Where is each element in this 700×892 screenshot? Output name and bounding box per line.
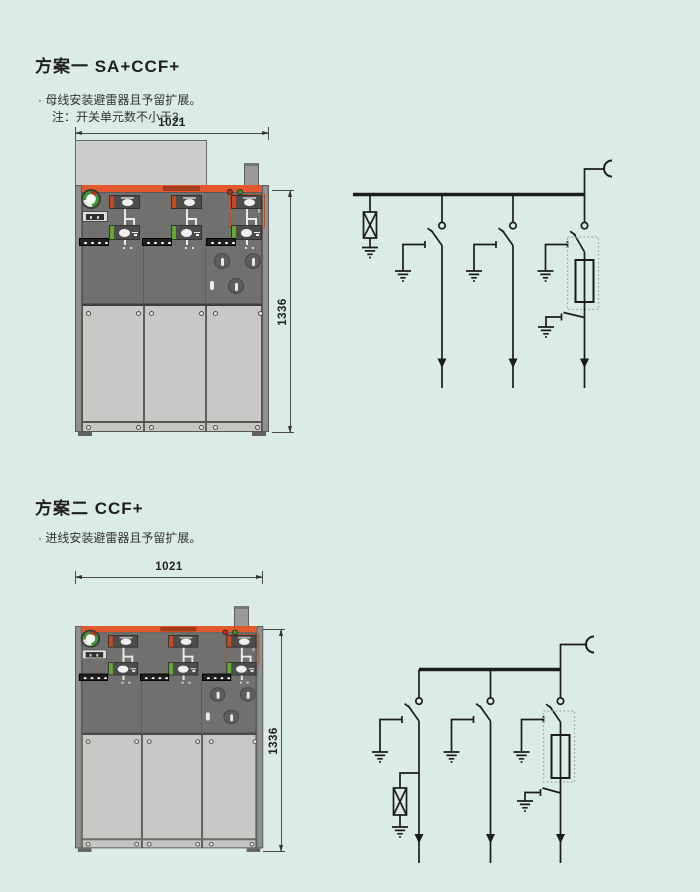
operating-knob — [122, 199, 133, 206]
panel-separator — [205, 243, 206, 304]
earth-mark — [132, 232, 138, 234]
dim-arrow-down — [279, 845, 283, 852]
nameplate-label — [163, 186, 200, 191]
fuse-combination-branch — [514, 671, 575, 863]
operating-port — [214, 253, 230, 269]
earth-mark — [190, 668, 196, 669]
screw — [147, 739, 152, 744]
screw — [149, 425, 154, 430]
bottom-strip — [82, 839, 257, 848]
bottom-strip — [82, 422, 262, 432]
operating-port — [228, 278, 244, 294]
dim-arrow-left — [75, 131, 82, 135]
earth-mark — [256, 234, 259, 236]
operating-port — [210, 687, 226, 701]
key-slot — [206, 712, 210, 720]
cabinet-front-view-scheme1 — [75, 185, 269, 436]
load-break-switch-module — [109, 195, 140, 209]
panel-separator — [143, 243, 144, 304]
screw — [86, 739, 91, 744]
door-separator — [143, 306, 145, 421]
scheme1-title: 方案一 SA+CCF+ — [35, 52, 180, 77]
operating-knob — [184, 199, 195, 206]
operating-knob — [236, 666, 247, 673]
red-indicator-light — [222, 630, 228, 635]
dim-arrow-down — [288, 426, 292, 433]
screw — [149, 311, 154, 316]
earth-mark — [134, 234, 137, 236]
terminal-strip — [206, 238, 236, 246]
terminal-strip — [202, 674, 231, 681]
dim-arrow-up — [279, 629, 283, 636]
dim-arrow-right — [256, 575, 263, 579]
terminal-strip — [140, 674, 169, 681]
door-separator — [205, 306, 207, 421]
single-line-diagram-scheme1 — [330, 140, 690, 400]
screw — [250, 842, 255, 847]
operating-knob — [181, 639, 192, 645]
door-separator — [141, 735, 143, 839]
screw — [134, 739, 139, 744]
scheme1-width-dimension: 1021 — [75, 133, 269, 134]
dim-arrow-right — [262, 131, 269, 135]
operating-port — [245, 253, 261, 269]
screw — [258, 311, 263, 316]
cabinet-front-view-scheme2 — [75, 626, 263, 852]
screw — [209, 842, 214, 847]
operating-knob — [239, 639, 250, 645]
door-separator — [201, 735, 203, 839]
nameplate-label — [160, 627, 196, 632]
panel-separator — [201, 678, 202, 733]
cabinet-left-post — [75, 626, 82, 848]
terminal-strip — [142, 238, 172, 246]
screw — [136, 311, 141, 316]
busbar-extension-box — [75, 140, 207, 187]
operating-port — [240, 687, 256, 701]
cabinet-foot — [78, 432, 92, 436]
scheme2-height-value: 1336 — [268, 727, 280, 755]
screw — [195, 739, 200, 744]
cabinet-left-post — [75, 185, 82, 432]
scheme2-width-value: 1021 — [155, 561, 183, 573]
earth-mark — [192, 670, 195, 671]
operating-knob — [178, 666, 189, 673]
screw — [199, 425, 204, 430]
screw — [213, 311, 218, 316]
load-break-switch-module — [171, 195, 202, 209]
operating-knob — [119, 229, 130, 237]
screw — [255, 425, 260, 430]
scheme2-width-dimension: 1021 — [75, 577, 263, 578]
earth-mark — [194, 232, 200, 234]
operation-counter — [82, 649, 107, 659]
green-indicator-light — [232, 630, 238, 635]
switchgear-cabinet — [75, 626, 263, 852]
screw — [136, 425, 141, 430]
earth-mark — [254, 232, 260, 234]
feeder-branch-2 — [466, 195, 518, 389]
lower-door-panels — [82, 733, 257, 839]
screw — [86, 842, 91, 847]
extension-reserve-symbol — [585, 161, 613, 197]
cabinet-foot — [78, 848, 92, 852]
key-slot — [210, 281, 214, 290]
catalog-page: { "page": { "bg_color": "#dbebe6" }, "sc… — [0, 0, 700, 892]
screw — [86, 425, 91, 430]
earth-mark — [249, 668, 255, 669]
incoming-branch-with-arrester — [372, 670, 424, 864]
earth-mark — [130, 668, 136, 669]
screw — [253, 739, 258, 744]
scheme2-bullet: · 进线安装避雷器且予留扩展。 — [38, 529, 201, 546]
scheme1-height-value: 1336 — [277, 298, 289, 326]
screw — [134, 842, 139, 847]
lower-door-panels — [82, 304, 262, 422]
earth-mark — [196, 234, 199, 236]
single-line-diagram-scheme2 — [330, 600, 690, 892]
operating-knob — [118, 666, 129, 673]
terminal-strip — [79, 674, 108, 681]
fuse-combination-branch — [538, 195, 599, 389]
scheme1-height-dimension: 1336 — [290, 190, 291, 433]
switchgear-cabinet — [75, 185, 269, 436]
terminal-strip — [79, 238, 109, 246]
dim-arrow-up — [288, 190, 292, 197]
surge-arrester-branch — [362, 195, 378, 258]
feeder-branch-1 — [395, 195, 447, 389]
load-break-switch-module — [231, 195, 262, 209]
screw — [213, 425, 218, 430]
earth-mark — [250, 670, 253, 671]
operating-port — [223, 710, 239, 724]
screw — [195, 842, 200, 847]
extension-reserve-symbol — [561, 637, 595, 672]
gas-pressure-gauge — [81, 630, 100, 648]
scheme1-width-value: 1021 — [158, 117, 186, 129]
feeder-branch — [444, 670, 496, 864]
load-break-switch-module — [226, 635, 256, 648]
operating-knob — [241, 229, 252, 237]
earth-mark — [132, 670, 135, 671]
red-indicator-light — [227, 189, 233, 195]
screw — [209, 739, 214, 744]
operation-counter — [82, 211, 108, 222]
screw — [199, 311, 204, 316]
green-indicator-light — [237, 189, 243, 195]
scheme2-title: 方案二 CCF+ — [35, 494, 144, 519]
scheme1-bullet: · 母线安装避雷器且予留扩展。 — [38, 91, 201, 108]
scheme2-height-dimension: 1336 — [281, 629, 282, 852]
load-break-switch-module — [108, 635, 138, 648]
gas-pressure-gauge — [81, 189, 101, 209]
load-break-switch-module — [168, 635, 198, 648]
panel-separator — [141, 678, 142, 733]
cabinet-foot — [252, 432, 266, 436]
cabinet-foot — [247, 848, 261, 852]
screw — [147, 842, 152, 847]
screw — [86, 311, 91, 316]
dim-arrow-left — [75, 575, 82, 579]
operating-knob — [121, 639, 132, 645]
operating-knob — [244, 199, 255, 206]
operating-knob — [181, 229, 192, 237]
